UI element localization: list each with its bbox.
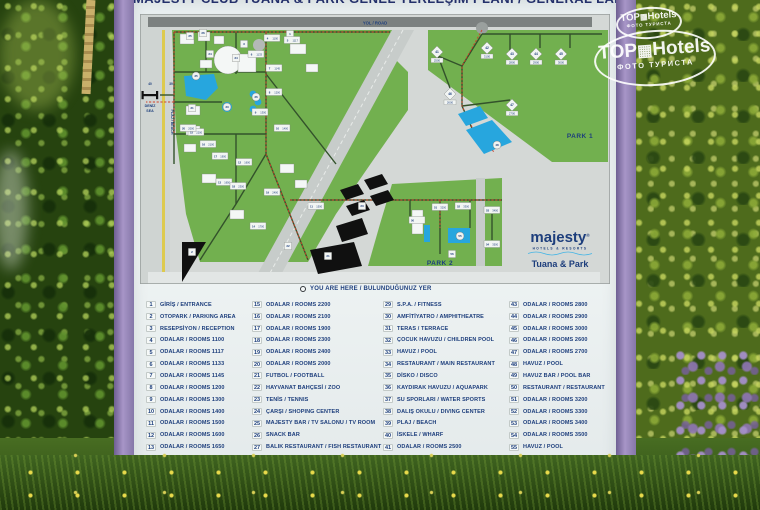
legend-item: 30AMFİTİYATRO / AMPHITHEATRE <box>383 311 505 323</box>
resort-map: YOL / ROAD 40 39 DENİZ SEA PLAJ / BEACH <box>140 14 610 284</box>
svg-text:1400: 1400 <box>282 126 288 130</box>
legend-item-label: ODALAR / ROOMS 2000 <box>266 361 331 367</box>
legend-item: 24ÇARŞI / SHOPING CENTER <box>252 406 377 418</box>
legend-item: 3RESEPSİYON / RECEPTION <box>146 323 245 335</box>
legend-item-label: ODALAR / ROOMS 1200 <box>160 385 225 391</box>
legend-item: 52ODALAR / ROOMS 3300 <box>509 406 605 418</box>
legend-item-label: ÇARŞI / SHOPING CENTER <box>266 409 339 415</box>
watermark-badge-large: TOP▦Hotels ФОТО ТУРИСТА <box>592 26 718 90</box>
svg-text:25: 25 <box>188 34 192 38</box>
legend-item: 25MAJESTY BAR / TV SALONU / TV ROOM <box>252 417 377 429</box>
legend-item: 1GİRİŞ / ENTRANCE <box>146 299 245 311</box>
svg-text:33: 33 <box>225 105 229 109</box>
legend-item-number: 34 <box>383 361 393 368</box>
legend-item: 40İSKELE / WHARF <box>383 429 505 441</box>
legend-item: 12ODALAR / ROOMS 1600 <box>146 429 245 441</box>
svg-text:46: 46 <box>448 92 452 96</box>
legend-item: 35DİSKO / DISCO <box>383 370 505 382</box>
legend-item: 22HAYVANAT BAHÇESİ / ZOO <box>252 382 377 394</box>
legend-item-number: 38 <box>383 408 393 415</box>
beach-number: 39 <box>169 82 173 86</box>
legend-item-number: 31 <box>383 325 393 332</box>
legend-item: 2OTOPARK / PARKING AREA <box>146 311 245 323</box>
legend-item-number: 50 <box>509 384 519 391</box>
svg-text:11: 11 <box>310 204 313 208</box>
svg-text:majesty®: majesty® <box>530 229 590 246</box>
light-patch <box>0 0 74 110</box>
legend-item: 8ODALAR / ROOMS 1200 <box>146 382 245 394</box>
legend-item-label: ODALAR / ROOMS 2700 <box>523 349 588 355</box>
legend-item-label: ÇOCUK HAVUZU / CHILDREN POOL <box>397 337 494 343</box>
legend-item-number: 33 <box>383 349 393 356</box>
svg-text:54: 54 <box>486 242 490 246</box>
svg-text:52: 52 <box>457 204 461 208</box>
legend-item-label: ODALAR / ROOMS 1117 <box>160 349 224 355</box>
legend-item: 54ODALAR / ROOMS 3500 <box>509 429 605 441</box>
legend-item-label: İSKELE / WHARF <box>397 432 443 438</box>
you-are-here-row: YOU ARE HERE / BULUNDUĞUNUZ YER <box>300 286 432 292</box>
legend-item-number: 35 <box>383 372 393 379</box>
sign-title: MAJESTY CLUB TUANA & PARK GENEL YERLEŞİM… <box>133 0 617 6</box>
svg-text:22: 22 <box>286 244 290 248</box>
legend-item-label: TERAS / TERRACE <box>397 326 448 332</box>
legend-item-number: 44 <box>509 313 519 320</box>
legend-item-number: 20 <box>252 361 262 368</box>
svg-text:2700: 2700 <box>509 112 516 116</box>
svg-text:48: 48 <box>495 143 499 147</box>
legend-item-label: ODALAR / ROOMS 1600 <box>160 432 225 438</box>
legend-item: 19ODALAR / ROOMS 2400 <box>252 346 377 358</box>
svg-text:3400: 3400 <box>492 208 498 212</box>
legend-item-label: SNACK BAR <box>266 432 300 438</box>
legend-item-label: HAYVANAT BAHÇESİ / ZOO <box>266 385 340 391</box>
legend-item: 7ODALAR / ROOMS 1145 <box>146 370 245 382</box>
svg-text:53: 53 <box>486 208 490 212</box>
legend-column-1: 1GİRİŞ / ENTRANCE2OTOPARK / PARKING AREA… <box>141 299 245 465</box>
legend-item-number: 8 <box>146 384 156 391</box>
legend-item-number: 51 <box>509 396 519 403</box>
legend-item-number: 4 <box>146 337 156 344</box>
wharf-number: 40 <box>148 82 152 86</box>
plaza-circle <box>253 39 265 51</box>
legend-item-number: 16 <box>252 313 262 320</box>
legend-item-label: DALIŞ OKULU / DIVING CENTER <box>397 409 485 415</box>
park1-label: PARK 1 <box>567 133 593 140</box>
legend-item: 39PLAJ / BEACH <box>383 417 505 429</box>
legend: 1GİRİŞ / ENTRANCE2OTOPARK / PARKING AREA… <box>141 299 609 465</box>
legend-item-number: 3 <box>146 325 156 332</box>
legend-item: 45ODALAR / ROOMS 3000 <box>509 323 605 335</box>
legend-item: 37SU SPORLARI / WATER SPORTS <box>383 394 505 406</box>
legend-item-number: 52 <box>509 408 519 415</box>
svg-text:3100: 3100 <box>484 55 491 59</box>
svg-text:1500: 1500 <box>316 204 322 208</box>
sign-post-left <box>114 0 134 494</box>
svg-text:14: 14 <box>252 224 256 228</box>
legend-item: 53ODALAR / ROOMS 3400 <box>509 417 605 429</box>
legend-item-number: 1 <box>146 301 156 308</box>
legend-item-number: 47 <box>509 349 519 356</box>
svg-text:18: 18 <box>232 184 236 188</box>
legend-item-label: S.P.A. / FITNESS <box>397 302 442 308</box>
photo-scene: MAJESTY CLUB TUANA & PARK GENEL YERLEŞİM… <box>0 0 760 510</box>
svg-text:20: 20 <box>182 126 186 130</box>
svg-text:12: 12 <box>238 160 242 164</box>
legend-item-label: HAVUZ / POOL <box>397 349 437 355</box>
svg-text:1200: 1200 <box>274 90 280 94</box>
svg-text:2100: 2100 <box>208 142 214 146</box>
logo-brand: majesty <box>530 229 587 246</box>
legend-item-number: 37 <box>383 396 393 403</box>
svg-text:10: 10 <box>276 126 280 130</box>
legend-item: 43ODALAR / ROOMS 2800 <box>509 299 605 311</box>
svg-text:42: 42 <box>485 46 489 50</box>
svg-text:26: 26 <box>201 31 205 35</box>
map-bottom-band <box>148 272 600 284</box>
legend-item-label: PLAJ / BEACH <box>397 420 436 426</box>
legend-item-number: 26 <box>252 432 262 439</box>
legend-item-number: 12 <box>146 432 156 439</box>
legend-item-number: 30 <box>383 313 393 320</box>
legend-item-number: 11 <box>146 420 156 427</box>
legend-item-label: RESEPSİYON / RECEPTION <box>160 326 235 332</box>
legend-item-label: AMFİTİYATRO / AMPHITHEATRE <box>397 314 484 320</box>
legend-item-label: ODALAR / ROOMS 2200 <box>266 302 331 308</box>
svg-text:36: 36 <box>254 95 258 99</box>
you-are-here-label: YOU ARE HERE / BULUNDUĞUNUZ YER <box>310 286 432 292</box>
legend-item-number: 9 <box>146 396 156 403</box>
legend-item-label: RESTAURANT / RESTAURANT <box>523 385 605 391</box>
svg-text:3000: 3000 <box>558 61 565 65</box>
legend-item-number: 49 <box>509 372 519 379</box>
legend-item: 26SNACK BAR <box>252 429 377 441</box>
legend-item: 11ODALAR / ROOMS 1500 <box>146 417 245 429</box>
legend-item-number: 10 <box>146 408 156 415</box>
legend-item-number: 18 <box>252 337 262 344</box>
logo-resort-name: Tuana & Park <box>532 259 590 269</box>
legend-item: 31TERAS / TERRACE <box>383 323 505 335</box>
map-sign-board: MAJESTY CLUB TUANA & PARK GENEL YERLEŞİM… <box>133 0 617 472</box>
legend-item: 34RESTAURANT / MAIN RESTAURANT <box>383 358 505 370</box>
svg-text:34: 34 <box>234 56 238 60</box>
svg-text:16: 16 <box>202 142 206 146</box>
legend-item-number: 23 <box>252 396 262 403</box>
legend-item: 23TENİS / TENNIS <box>252 394 377 406</box>
legend-item-label: ODALAR / ROOMS 1133 <box>160 361 224 367</box>
legend-item: 46ODALAR / ROOMS 2600 <box>509 335 605 347</box>
legend-item: 9ODALAR / ROOMS 1300 <box>146 394 245 406</box>
legend-item-number: 54 <box>509 432 519 439</box>
svg-text:3200: 3200 <box>440 205 446 209</box>
legend-item: 38DALIŞ OKULU / DIVING CENTER <box>383 406 505 418</box>
yellow-flowers <box>0 452 760 508</box>
svg-text:2300: 2300 <box>238 184 244 188</box>
legend-item-number: 17 <box>252 325 262 332</box>
svg-text:2900: 2900 <box>533 61 540 65</box>
legend-item: 10ODALAR / ROOMS 1400 <box>146 406 245 418</box>
svg-text:1145: 1145 <box>274 66 280 70</box>
svg-text:23: 23 <box>360 204 364 208</box>
legend-item-label: ODALAR / ROOMS 2900 <box>523 314 588 320</box>
legend-item-label: ODALAR / ROOMS 1300 <box>160 397 225 403</box>
legend-item-number: 32 <box>383 337 393 344</box>
svg-text:17: 17 <box>214 154 218 158</box>
legend-item: 5ODALAR / ROOMS 1117 <box>146 346 245 358</box>
legend-item-label: ODALAR / ROOMS 3200 <box>523 397 588 403</box>
legend-item-label: SU SPORLARI / WATER SPORTS <box>397 397 485 403</box>
svg-text:45: 45 <box>559 52 563 56</box>
legend-item-number: 46 <box>509 337 519 344</box>
legend-column-3: 29S.P.A. / FITNESS30AMFİTİYATRO / AMPHIT… <box>377 299 505 465</box>
legend-item-number: 24 <box>252 408 262 415</box>
legend-item-label: HAVUZ BAR / POOL BAR <box>523 373 591 379</box>
legend-item-label: ODALAR / ROOMS 2600 <box>523 337 588 343</box>
legend-item: 18ODALAR / ROOMS 2300 <box>252 335 377 347</box>
svg-text:31: 31 <box>190 106 194 110</box>
legend-item-label: ODALAR / ROOMS 1400 <box>160 409 225 415</box>
legend-item-number: 36 <box>383 384 393 391</box>
legend-item-number: 43 <box>509 301 519 308</box>
svg-text:3500: 3500 <box>492 242 498 246</box>
legend-item-number: 7 <box>146 372 156 379</box>
svg-text:1650: 1650 <box>224 180 230 184</box>
svg-text:44: 44 <box>534 52 538 56</box>
svg-text:1900: 1900 <box>220 154 226 158</box>
beach-line <box>162 30 165 282</box>
legend-item-number: 25 <box>252 420 262 427</box>
svg-text:1133: 1133 <box>256 52 262 56</box>
watermark-brand: TOP <box>598 40 638 64</box>
svg-text:2400: 2400 <box>272 190 278 194</box>
beach-strip <box>140 14 170 284</box>
legend-item: 6ODALAR / ROOMS 1133 <box>146 358 245 370</box>
sea-label-2: SEA <box>146 109 154 113</box>
legend-item-label: GİRİŞ / ENTRANCE <box>160 302 212 308</box>
you-are-here-icon <box>300 286 306 292</box>
legend-item: 15ODALAR / ROOMS 2200 <box>252 299 377 311</box>
legend-item-number: 21 <box>252 372 262 379</box>
svg-text:2000: 2000 <box>188 126 194 130</box>
legend-item-number: 6 <box>146 361 156 368</box>
park2-road <box>476 178 485 266</box>
svg-text:2800: 2800 <box>509 61 516 65</box>
legend-item-number: 5 <box>146 349 156 356</box>
legend-column-2: 15ODALAR / ROOMS 220016ODALAR / ROOMS 21… <box>245 299 377 465</box>
road-label: YOL / ROAD <box>363 20 387 25</box>
legend-item-number: 45 <box>509 325 519 332</box>
legend-item-label: ODALAR / ROOMS 1900 <box>266 326 331 332</box>
legend-item-number: 22 <box>252 384 262 391</box>
roundabout <box>476 22 488 34</box>
svg-text:55: 55 <box>458 234 462 238</box>
legend-item: 50RESTAURANT / RESTAURANT <box>509 382 605 394</box>
legend-item: 47ODALAR / ROOMS 2700 <box>509 346 605 358</box>
svg-text:21: 21 <box>326 254 330 258</box>
legend-item-label: ODALAR / ROOMS 3000 <box>523 326 588 332</box>
svg-text:51: 51 <box>434 205 438 209</box>
legend-item: 44ODALAR / ROOMS 2900 <box>509 311 605 323</box>
legend-item: 20ODALAR / ROOMS 2000 <box>252 358 377 370</box>
svg-text:24: 24 <box>208 52 212 56</box>
legend-item-label: HAVUZ / POOL <box>523 361 563 367</box>
svg-text:41: 41 <box>435 50 439 54</box>
legend-item-label: ODALAR / ROOMS 1500 <box>160 420 225 426</box>
svg-text:35: 35 <box>194 74 198 78</box>
legend-item-label: OTOPARK / PARKING AREA <box>160 314 236 320</box>
park2-label: PARK 2 <box>427 260 453 267</box>
svg-text:2600: 2600 <box>447 101 454 105</box>
legend-item: 29S.P.A. / FITNESS <box>383 299 505 311</box>
legend-item: 16ODALAR / ROOMS 2100 <box>252 311 377 323</box>
svg-text:1300: 1300 <box>260 110 266 114</box>
svg-text:47: 47 <box>510 103 514 107</box>
legend-item-label: TENİS / TENNIS <box>266 397 308 403</box>
building-icon: ▦ <box>637 41 653 60</box>
sea-label-1: DENİZ <box>145 104 157 108</box>
svg-text:3300: 3300 <box>463 204 469 208</box>
legend-item-label: ODALAR / ROOMS 3500 <box>523 432 588 438</box>
legend-item-number: 19 <box>252 349 262 356</box>
legend-item: 51ODALAR / ROOMS 3200 <box>509 394 605 406</box>
svg-text:2500: 2500 <box>434 59 441 63</box>
legend-item: 4ODALAR / ROOMS 1100 <box>146 335 245 347</box>
legend-item-label: ODALAR / ROOMS 2800 <box>523 302 588 308</box>
legend-item-number: 48 <box>509 361 519 368</box>
svg-text:1117: 1117 <box>293 38 299 42</box>
svg-text:50: 50 <box>411 218 415 222</box>
legend-item-number: 29 <box>383 301 393 308</box>
resort-map-svg: YOL / ROAD 40 39 DENİZ SEA PLAJ / BEACH <box>140 14 610 284</box>
legend-item-label: ODALAR / ROOMS 3300 <box>523 409 588 415</box>
legend-item-number: 53 <box>509 420 519 427</box>
legend-item: 48HAVUZ / POOL <box>509 358 605 370</box>
legend-item: 33HAVUZ / POOL <box>383 346 505 358</box>
legend-item-label: ODALAR / ROOMS 3400 <box>523 420 588 426</box>
legend-item-label: RESTAURANT / MAIN RESTAURANT <box>397 361 495 367</box>
svg-text:1700: 1700 <box>258 224 264 228</box>
svg-text:43: 43 <box>510 52 514 56</box>
legend-column-4: 43ODALAR / ROOMS 280044ODALAR / ROOMS 29… <box>505 299 605 465</box>
svg-text:1600: 1600 <box>244 160 250 164</box>
legend-item-label: ODALAR / ROOMS 1145 <box>160 373 224 379</box>
legend-item: 36KAYDIRAK HAVUZU / AQUAPARK <box>383 382 505 394</box>
svg-text:19: 19 <box>266 190 270 194</box>
svg-text:2200: 2200 <box>196 130 202 134</box>
legend-item-label: FUTBOL / FOOTBALL <box>266 373 324 379</box>
svg-text:1100: 1100 <box>272 36 278 40</box>
legend-item: 17ODALAR / ROOMS 1900 <box>252 323 377 335</box>
majesty-logo: majesty® HOTELS & RESORTS Tuana & Park <box>528 229 592 269</box>
legend-item-label: ODALAR / ROOMS 2400 <box>266 349 331 355</box>
svg-text:56: 56 <box>450 252 454 256</box>
legend-item: 32ÇOCUK HAVUZU / CHILDREN POOL <box>383 335 505 347</box>
legend-item-label: ODALAR / ROOMS 2300 <box>266 337 331 343</box>
svg-text:13: 13 <box>218 180 222 184</box>
legend-item-label: ODALAR / ROOMS 2100 <box>266 314 331 320</box>
legend-item-number: 39 <box>383 420 393 427</box>
legend-item-label: MAJESTY BAR / TV SALONU / TV ROOM <box>266 420 375 426</box>
legend-item-number: 2 <box>146 313 156 320</box>
legend-item: 21FUTBOL / FOOTBALL <box>252 370 377 382</box>
legend-item-label: KAYDIRAK HAVUZU / AQUAPARK <box>397 385 488 391</box>
legend-item-number: 40 <box>383 432 393 439</box>
logo-tagline: HOTELS & RESORTS <box>533 247 588 251</box>
legend-item-label: ODALAR / ROOMS 1100 <box>160 337 224 343</box>
legend-item-label: DİSKO / DISCO <box>397 373 438 379</box>
legend-item: 49HAVUZ BAR / POOL BAR <box>509 370 605 382</box>
legend-item-number: 15 <box>252 301 262 308</box>
